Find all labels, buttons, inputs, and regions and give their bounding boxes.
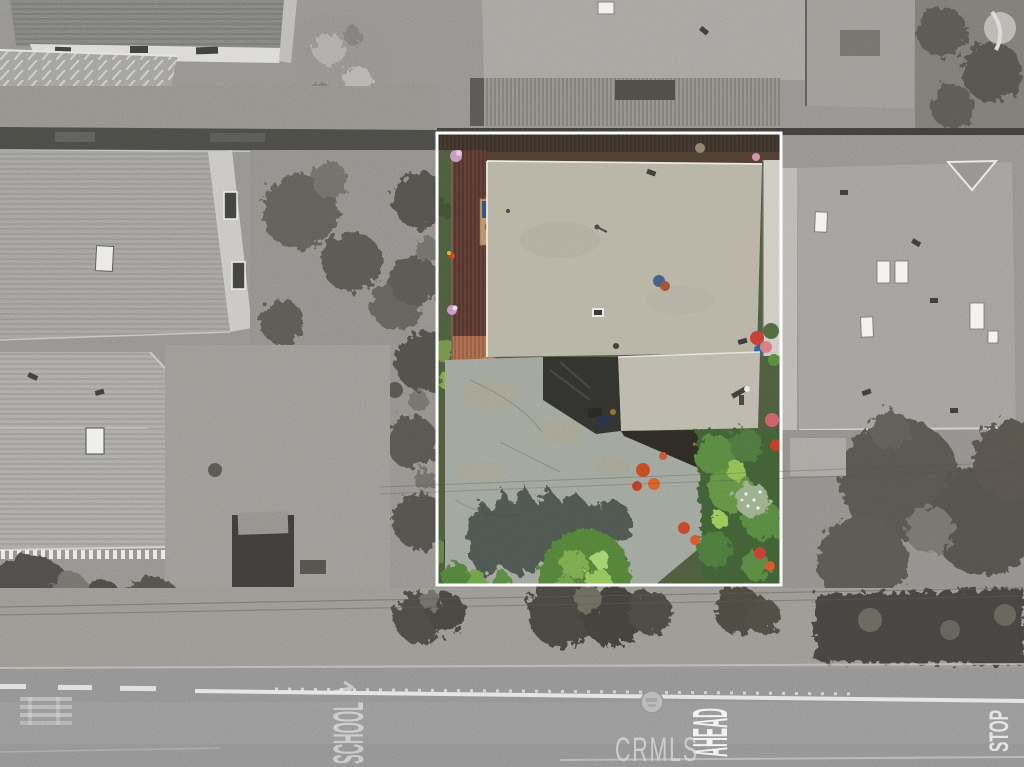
- aerial-photo-canvas: SCHOOL AHEAD STOP CRMLS: [0, 0, 1024, 767]
- aerial-photo: SCHOOL AHEAD STOP CRMLS: [0, 0, 1024, 767]
- grain-overlay: [0, 0, 1024, 767]
